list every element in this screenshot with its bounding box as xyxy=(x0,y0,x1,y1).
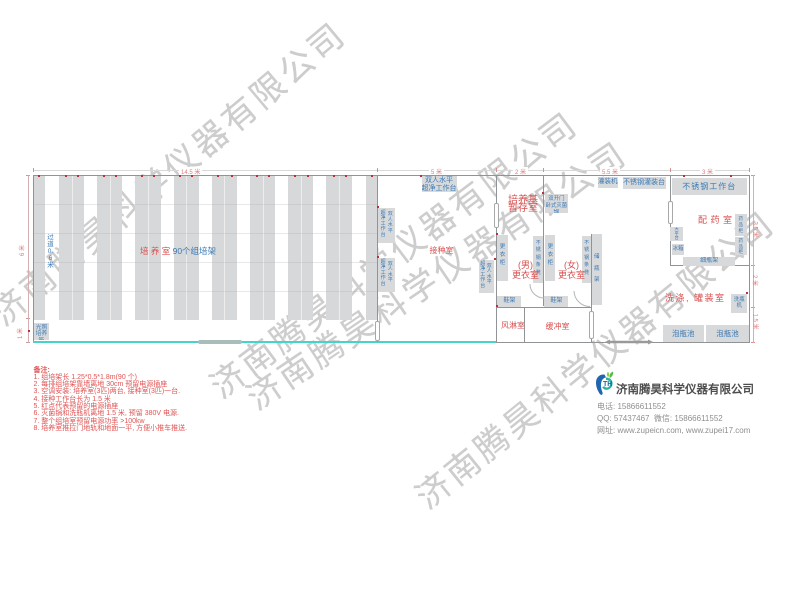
svg-text:TH: TH xyxy=(603,381,612,388)
